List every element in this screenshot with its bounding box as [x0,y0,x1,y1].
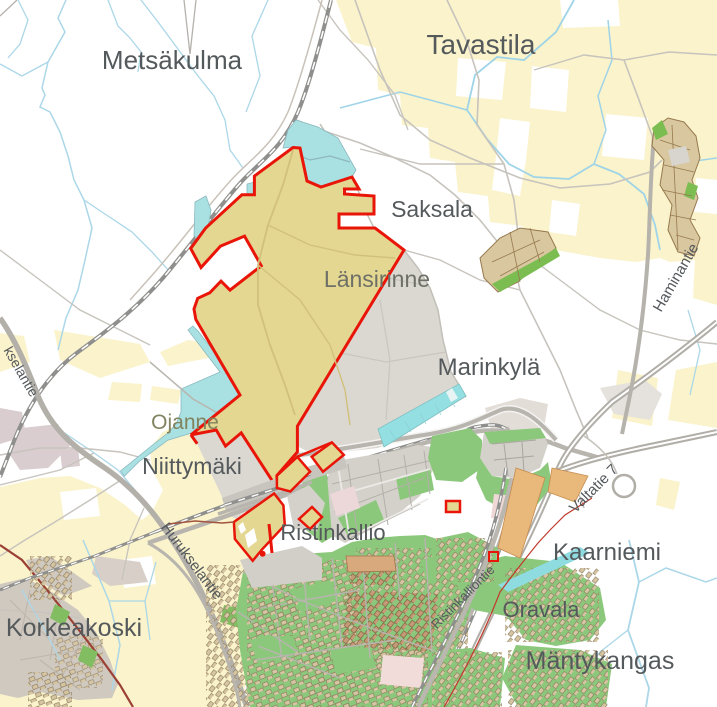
svg-text:Tavastila: Tavastila [427,29,536,60]
svg-text:Marinkylä: Marinkylä [438,354,541,381]
svg-text:Niittymäki: Niittymäki [142,453,242,479]
svg-text:Oravala: Oravala [502,597,580,622]
svg-text:Korkeakoski: Korkeakoski [6,614,142,642]
svg-text:Ojanne: Ojanne [151,411,219,434]
svg-text:Kaarniemi: Kaarniemi [553,539,661,566]
svg-text:Saksala: Saksala [391,196,473,222]
svg-text:Länsirinne: Länsirinne [324,266,430,292]
svg-text:Ristinkallio: Ristinkallio [280,520,385,545]
svg-text:Metsäkulma: Metsäkulma [102,45,243,75]
svg-text:Mäntykangas: Mäntykangas [526,647,675,675]
